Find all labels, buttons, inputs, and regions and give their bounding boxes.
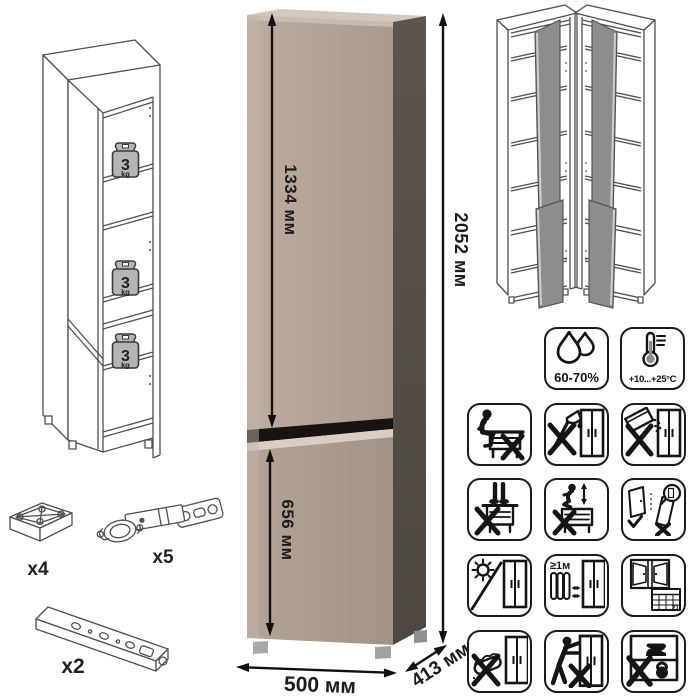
weight-badge: 3 kg: [113, 143, 139, 179]
load-unit: kg: [121, 170, 130, 179]
humidity-label: 60-70%: [546, 370, 607, 385]
rail-count-label: x2: [61, 655, 84, 678]
cabinet-side-face: [393, 16, 426, 645]
hinge-count-label: x5: [152, 547, 174, 568]
mounting-rail-icon: [36, 607, 168, 671]
radiator-distance-label: ≥1м: [550, 560, 570, 572]
carcass-line-drawing: 3 kg 3 kg 3 kg: [5, 30, 235, 480]
product-infographic: 3 kg 3 kg 3 kg: [0, 0, 689, 700]
no-spilling-icon: [621, 403, 686, 466]
load-unit: kg: [121, 288, 130, 297]
no-jumping-icon: [544, 478, 609, 541]
hardware-section: x4 x5 x: [0, 455, 235, 700]
upper-door-height-label: 1334 мм: [281, 164, 300, 235]
load-unit: kg: [121, 361, 130, 370]
temperature-label: +10...+25°C: [622, 374, 683, 385]
hinge-holes: [149, 107, 151, 385]
humidity-drops-icon: 60-70%: [544, 327, 609, 390]
no-sitting-icon: [467, 403, 532, 466]
ventilation-schedule-icon: 21: [621, 554, 686, 617]
thermometer-icon: +10...+25°C: [620, 327, 685, 390]
cabinet-render: 1334 мм 656 мм 2052 мм 500 мм 413 мм: [228, 3, 478, 700]
no-sharp-tools-icon: [544, 403, 609, 466]
upper-door: [247, 15, 393, 430]
door-orientation-drawing: [463, 3, 689, 333]
shelves: [103, 164, 153, 452]
no-heavy-load-icon: [621, 630, 686, 693]
cabinet-unit: [497, 5, 577, 308]
no-standing-icon: [467, 478, 532, 541]
hinge-icon: [95, 497, 223, 546]
no-pushing-icon: [544, 630, 609, 693]
calendar-day-label: 21: [672, 605, 680, 612]
heater-distance-icon: ≥1м: [544, 554, 609, 617]
lower-door-height-label: 656 мм: [278, 499, 297, 560]
carcass-left-panel: [43, 55, 68, 440]
weight-badge: 3 kg: [113, 261, 139, 297]
foot-glide-icon: [10, 503, 72, 541]
no-wet-cleaning-icon: [467, 630, 532, 693]
door-adjustment-icon: [621, 478, 686, 541]
width-label: 500 мм: [284, 673, 357, 698]
foot-count-label: x4: [27, 559, 49, 580]
weight-badge: 3 kg: [113, 334, 139, 370]
no-direct-sunlight-icon: [467, 554, 532, 617]
